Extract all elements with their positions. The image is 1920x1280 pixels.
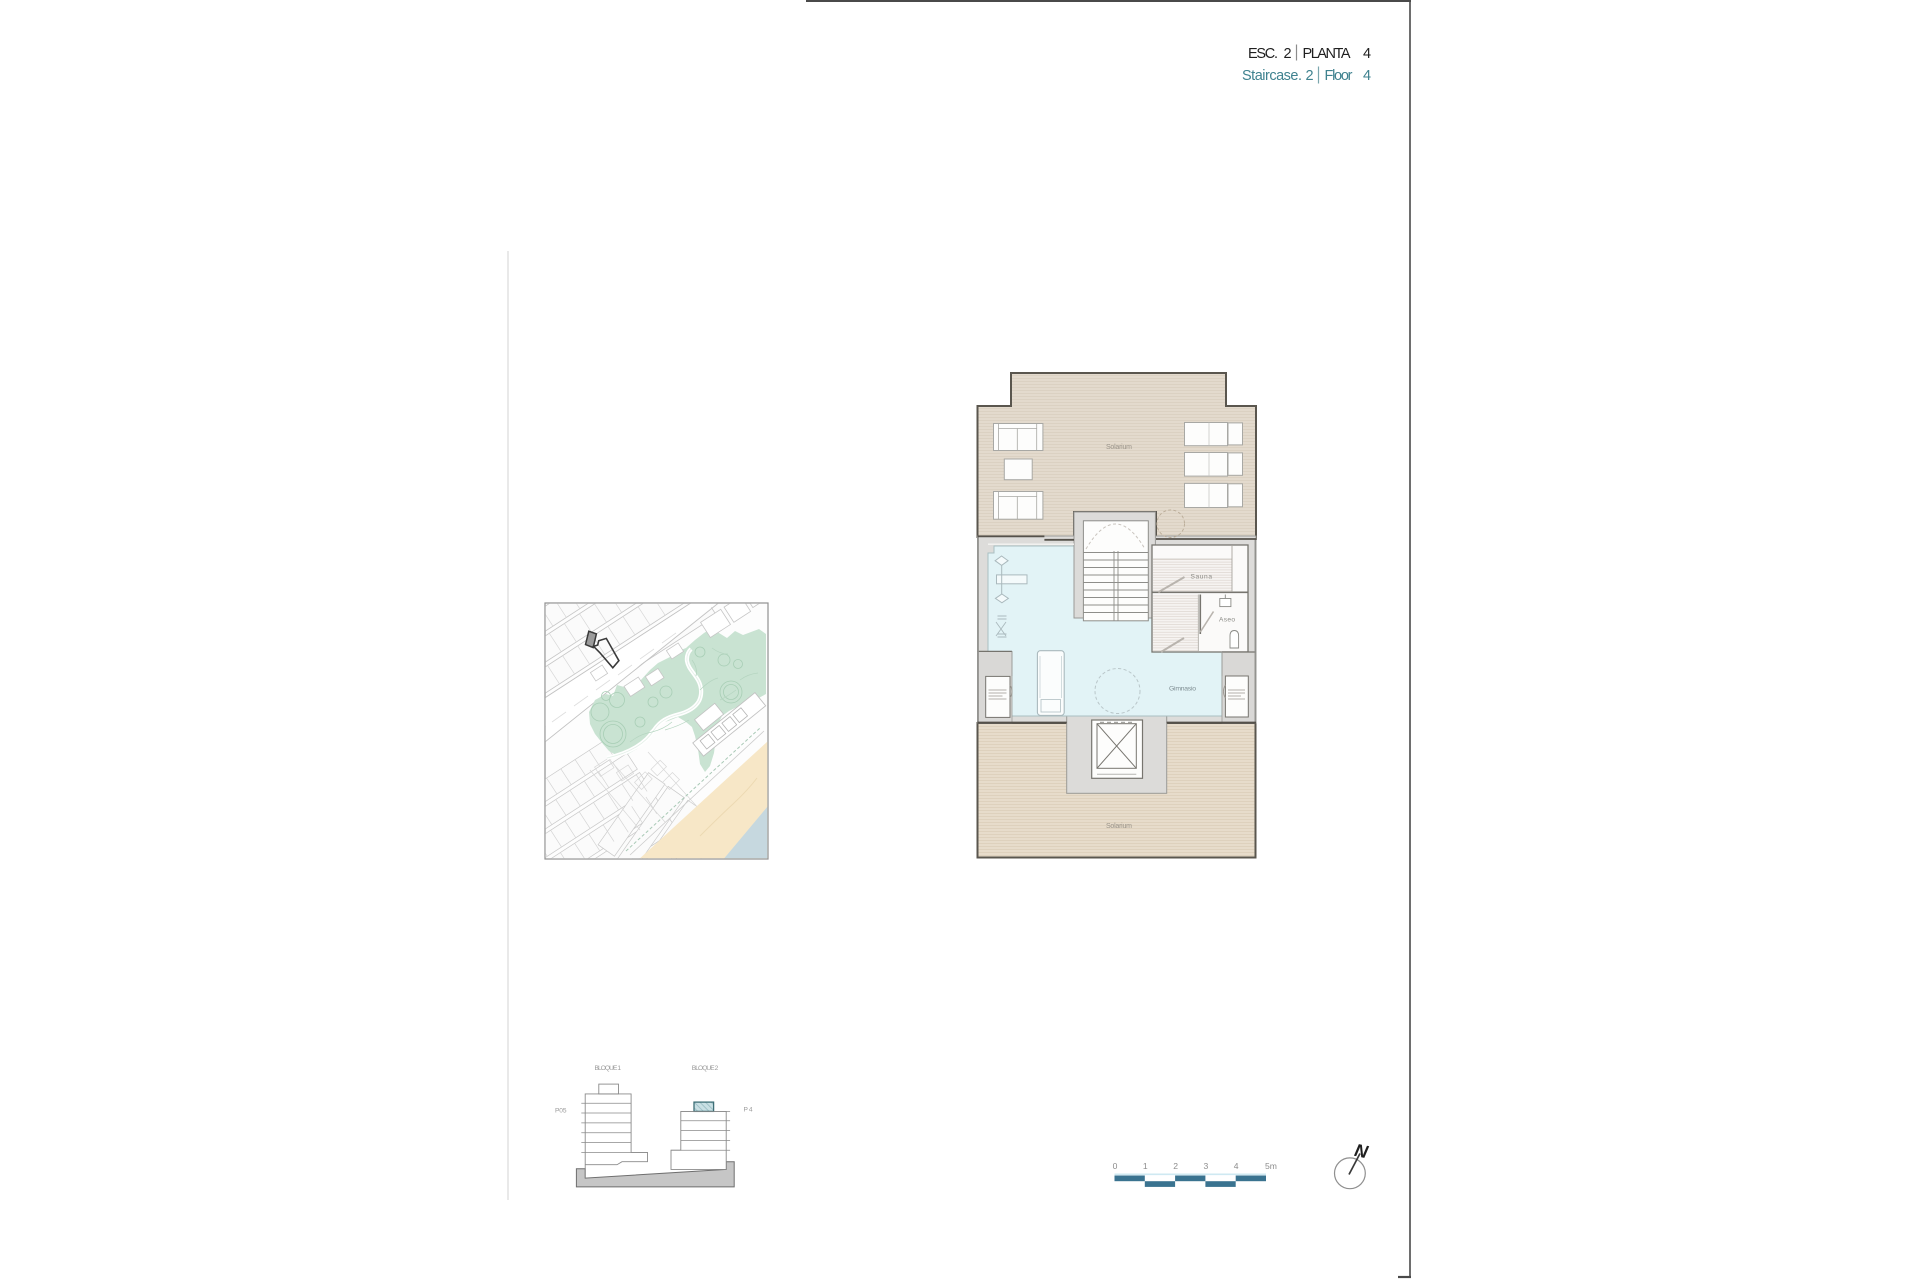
svg-text:4: 4 xyxy=(1363,68,1371,84)
svg-text:BLOQUE 1: BLOQUE 1 xyxy=(595,1065,622,1072)
svg-text:Aseo: Aseo xyxy=(1219,617,1235,624)
svg-text:PLANTA: PLANTA xyxy=(1303,46,1351,62)
svg-text:ESC.: ESC. xyxy=(1248,46,1278,62)
svg-text:2: 2 xyxy=(1306,68,1314,84)
svg-text:Floor: Floor xyxy=(1325,68,1353,84)
svg-text:1: 1 xyxy=(1143,1161,1148,1171)
svg-text:Solarium: Solarium xyxy=(1106,823,1132,830)
svg-text:5m: 5m xyxy=(1265,1161,1277,1171)
svg-text:P4: P4 xyxy=(744,1107,753,1114)
svg-text:BLOQUE 2: BLOQUE 2 xyxy=(692,1065,719,1072)
svg-text:Staircase.: Staircase. xyxy=(1242,68,1302,84)
svg-text:2: 2 xyxy=(1284,46,1292,62)
svg-text:Gimnasio: Gimnasio xyxy=(1169,686,1196,693)
svg-text:P05: P05 xyxy=(555,1108,567,1115)
svg-text:4: 4 xyxy=(1363,46,1371,62)
svg-text:Sauna: Sauna xyxy=(1191,574,1213,581)
svg-text:0: 0 xyxy=(1113,1161,1118,1171)
svg-text:3: 3 xyxy=(1204,1161,1209,1171)
svg-text:4: 4 xyxy=(1234,1161,1239,1171)
svg-text:Solarium: Solarium xyxy=(1106,444,1132,451)
svg-text:2: 2 xyxy=(1173,1161,1178,1171)
